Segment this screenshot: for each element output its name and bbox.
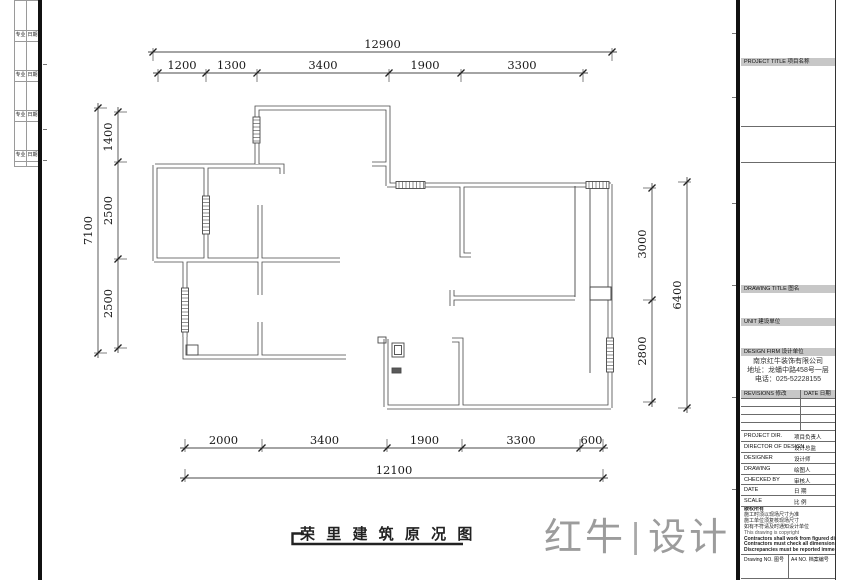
date-col-label: DATE 日期 bbox=[804, 390, 831, 398]
revisions-divider bbox=[800, 390, 801, 430]
column-pier bbox=[590, 287, 611, 300]
walls bbox=[154, 108, 611, 408]
logo-left: 红牛 bbox=[544, 515, 626, 559]
cad-sheet: 专业 日期 专业 日期 专业 日期 专业 日期 1290012001300340… bbox=[0, 0, 860, 580]
svg-text:12900: 12900 bbox=[364, 37, 401, 51]
svg-text:3000: 3000 bbox=[635, 229, 649, 258]
svg-text:6400: 6400 bbox=[670, 280, 684, 309]
dimension-top-segments: 12001300340019003300 bbox=[153, 58, 588, 82]
windows bbox=[182, 117, 614, 372]
company-phone: 电话：025-52228155 bbox=[741, 375, 835, 384]
company-name: 南京红牛装饰有限公司 bbox=[741, 357, 835, 366]
svg-text:12100: 12100 bbox=[376, 463, 413, 477]
dimension-bottom-segments: 2000340019003300600 bbox=[180, 433, 608, 452]
svg-text:7100: 7100 bbox=[81, 216, 95, 245]
dimension-left-segments: 140025002500 bbox=[101, 107, 127, 353]
svg-text:3400: 3400 bbox=[310, 433, 339, 447]
file-no-label: A4 NO. 档案编号 bbox=[791, 556, 829, 563]
logo-right: 设计 bbox=[648, 515, 730, 559]
svg-text:3300: 3300 bbox=[506, 433, 535, 447]
drawing-title-band: DRAWING TITLE 图名 bbox=[741, 285, 835, 293]
svg-text:3400: 3400 bbox=[308, 58, 337, 72]
svg-text:2800: 2800 bbox=[635, 336, 649, 365]
company-info: 南京红牛装饰有限公司 地址：龙蟠中路458号一层 电话：025-52228155 bbox=[741, 357, 835, 384]
svg-text:1300: 1300 bbox=[217, 58, 246, 72]
company-address: 地址：龙蟠中路458号一层 bbox=[741, 366, 835, 375]
svg-text:2500: 2500 bbox=[101, 289, 115, 318]
drawing-no-label: Drawing NO. 图号 bbox=[744, 556, 784, 563]
dimension-bottom-overall: 12100 bbox=[180, 463, 608, 482]
svg-text:2500: 2500 bbox=[101, 196, 115, 225]
copyright-notes: 版权所有 施工时须以现场尺寸为准 施工单位须复核现场尺寸 如有不符请及时通知设计… bbox=[744, 507, 836, 554]
design-firm-band: DESIGN FIRM 设计单位 bbox=[741, 348, 835, 356]
number-cells-divider bbox=[788, 554, 789, 578]
svg-text:600: 600 bbox=[581, 433, 603, 447]
svg-text:3300: 3300 bbox=[507, 58, 536, 72]
unit-band: UNIT 建设单位 bbox=[741, 318, 835, 326]
title-block: PROJECT TITLE 项目名称 DRAWING TITLE 图名 UNIT… bbox=[736, 0, 860, 580]
title-block-right-border bbox=[835, 0, 836, 580]
dimension-right-segments: 30002800 bbox=[635, 183, 656, 407]
floor-plan-svg: 1290012001300340019003300200034001900330… bbox=[0, 0, 860, 580]
svg-text:1200: 1200 bbox=[167, 58, 196, 72]
project-title-band: PROJECT TITLE 项目名称 bbox=[741, 58, 835, 66]
brand-logo: 红牛|设计 bbox=[544, 506, 730, 561]
svg-text:1400: 1400 bbox=[101, 122, 115, 151]
svg-text:2000: 2000 bbox=[209, 433, 238, 447]
frame-border-right bbox=[736, 0, 740, 580]
logo-separator: | bbox=[626, 516, 648, 555]
drawing-title: 荣 里 建 筑 原 况 图 bbox=[300, 523, 475, 544]
svg-text:1900: 1900 bbox=[410, 58, 439, 72]
dimension-right-overall: 6400 bbox=[670, 177, 691, 413]
revisions-band: REVISIONS 修改 DATE 日期 bbox=[741, 390, 835, 398]
glazing-lines bbox=[575, 185, 590, 373]
svg-text:1900: 1900 bbox=[410, 433, 439, 447]
